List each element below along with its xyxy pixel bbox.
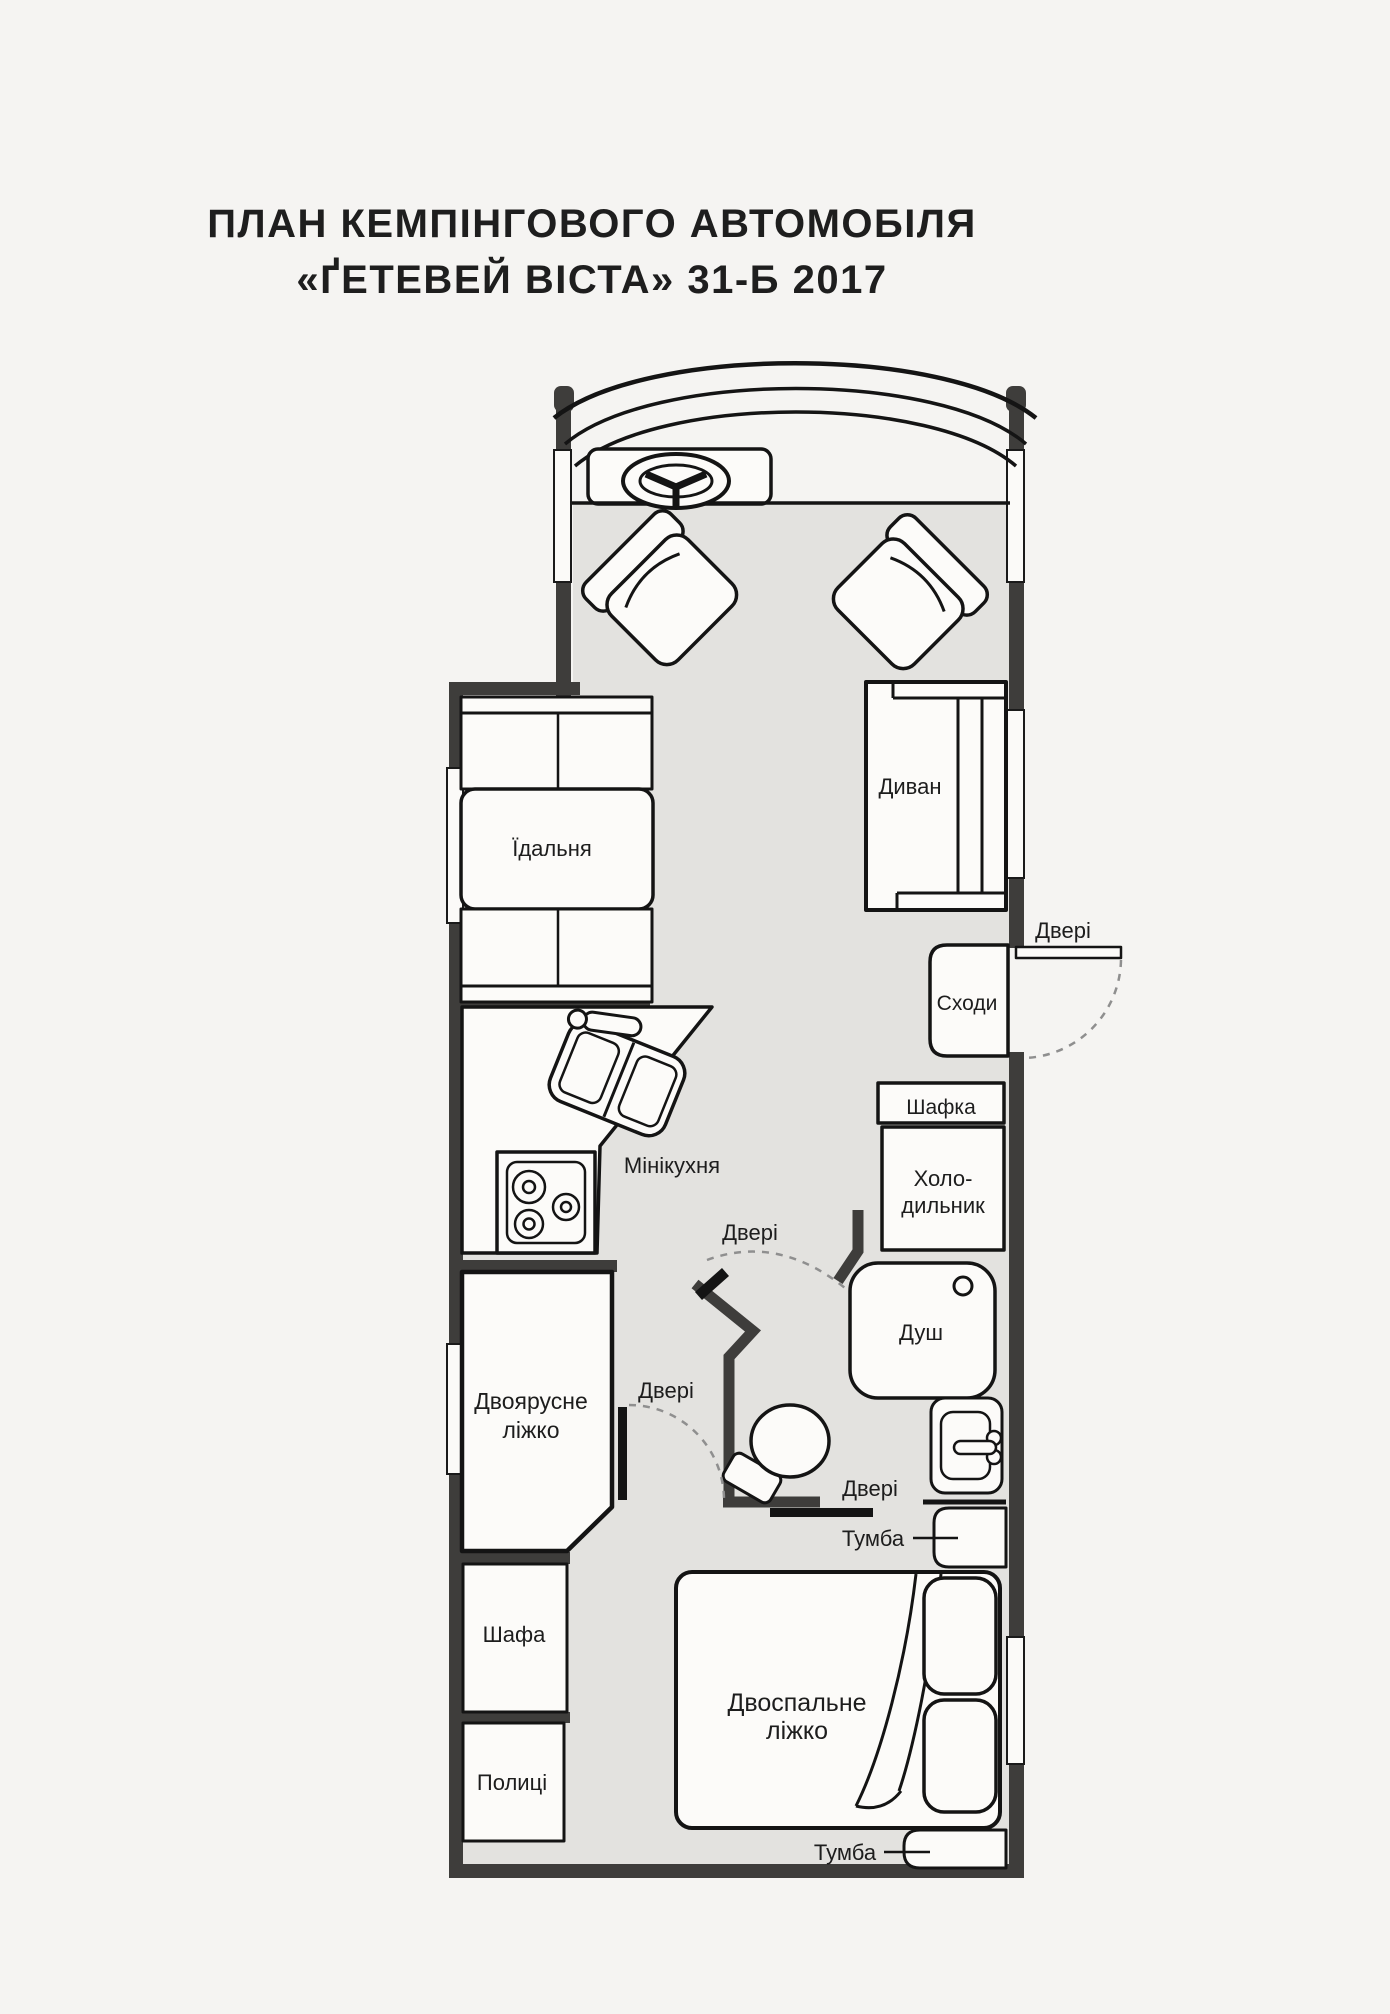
pillow [924, 1578, 996, 1694]
label-shower: Душ [899, 1320, 943, 1345]
label-fridge-line2: дильник [901, 1193, 985, 1218]
label-mini-kitchen: Мінікухня [624, 1153, 720, 1178]
label-double-bed-line2: ліжко [766, 1717, 828, 1745]
label-bunk-door: Двері [638, 1378, 694, 1403]
window [1007, 710, 1024, 878]
page: ПЛАН КЕМПІНГОВОГО АВТОМОБІЛЯ «ҐЕТЕВЕЙ ВІ… [0, 0, 1390, 2014]
label-double-bed-line1: Двоспальне [727, 1689, 866, 1717]
floor-plan: Їдальня Диван Двері Сходи Шафка Холо- ди… [0, 0, 1390, 2014]
label-kitchen-door: Двері [722, 1220, 778, 1245]
window [1007, 1637, 1024, 1764]
window [1007, 450, 1024, 582]
label-nightstand-2: Тумба [814, 1840, 877, 1865]
label-shelves: Полиці [477, 1770, 547, 1795]
entry-door [1016, 947, 1121, 1058]
pillow [924, 1700, 996, 1812]
label-bedroom-door: Двері [842, 1476, 898, 1501]
label-fridge-line1: Холо- [914, 1166, 973, 1191]
label-bunk-line1: Двоярусне [474, 1388, 588, 1414]
stove [497, 1152, 595, 1253]
steering-wheel-icon [623, 454, 729, 508]
label-dining: Їдальня [512, 836, 592, 861]
label-bunk-line2: ліжко [502, 1417, 559, 1443]
washbasin [931, 1398, 1002, 1493]
label-cabinet: Шафка [906, 1096, 976, 1119]
label-stairs: Сходи [937, 992, 998, 1015]
label-nightstand-1: Тумба [842, 1526, 905, 1551]
bedroom-door [770, 1508, 873, 1517]
label-entry-door: Двері [1035, 918, 1091, 943]
label-wardrobe: Шафа [483, 1622, 546, 1647]
label-sofa: Диван [878, 774, 941, 799]
window [554, 450, 571, 582]
